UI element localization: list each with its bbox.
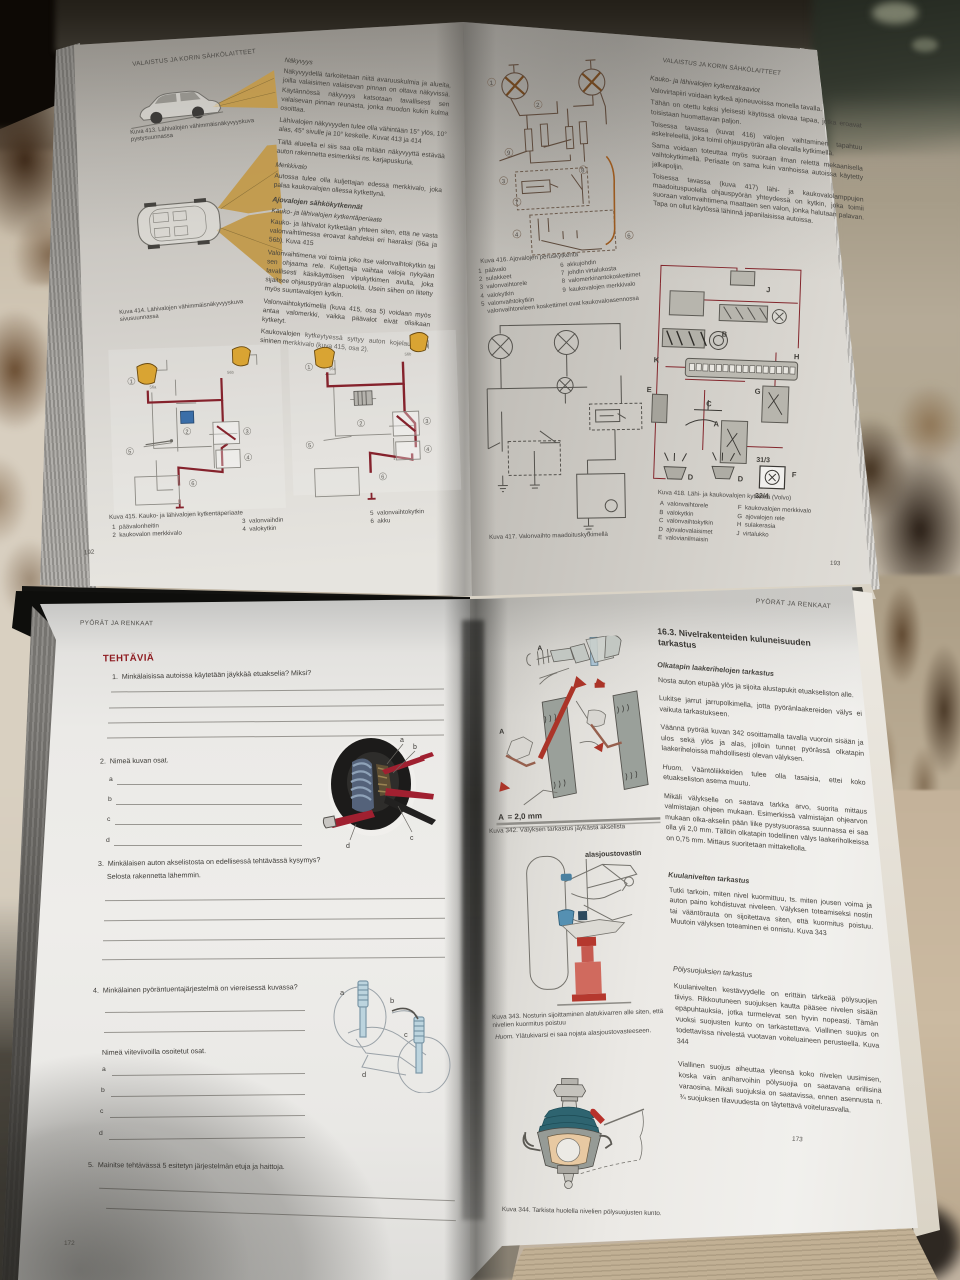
svg-text:E: E [647, 385, 652, 394]
svg-text:b: b [413, 744, 417, 751]
svg-text:3: 3 [425, 419, 428, 425]
svg-text:2: 2 [185, 429, 188, 435]
svg-text:F: F [792, 470, 797, 479]
svg-text:5: 5 [128, 449, 131, 455]
svg-text:6: 6 [381, 475, 384, 481]
svg-text:c: c [410, 835, 414, 842]
svg-text:56b: 56b [227, 370, 235, 375]
svg-text:J: J [766, 285, 770, 294]
svg-text:6: 6 [191, 481, 194, 487]
svg-text:3: 3 [245, 429, 248, 435]
svg-text:d: d [346, 843, 350, 850]
svg-text:4: 4 [515, 232, 519, 238]
svg-text:5: 5 [308, 443, 311, 449]
svg-text:1: 1 [130, 379, 133, 385]
svg-text:K: K [654, 355, 660, 364]
svg-text:D: D [737, 474, 743, 483]
svg-text:A: A [537, 645, 542, 652]
svg-text:A: A [499, 729, 504, 736]
svg-text:2: 2 [536, 103, 540, 109]
svg-text:31/3: 31/3 [756, 457, 770, 464]
svg-text:8: 8 [581, 168, 585, 174]
svg-text:D: D [688, 472, 694, 481]
svg-text:6: 6 [627, 233, 631, 239]
svg-text:G: G [755, 387, 761, 396]
svg-text:4: 4 [426, 447, 429, 453]
svg-text:H: H [794, 352, 800, 361]
svg-text:56b: 56b [405, 351, 413, 356]
svg-text:B: B [722, 330, 728, 339]
svg-text:a: a [400, 737, 404, 744]
svg-text:1: 1 [307, 365, 310, 371]
svg-text:7: 7 [515, 200, 519, 206]
svg-text:A = 2,0 mm: A = 2,0 mm [498, 811, 542, 822]
svg-text:2: 2 [359, 421, 362, 427]
svg-text:1: 1 [490, 81, 494, 87]
svg-text:4: 4 [246, 455, 249, 461]
svg-text:9: 9 [507, 151, 511, 157]
svg-text:C: C [706, 399, 712, 408]
svg-text:3: 3 [502, 179, 506, 185]
svg-text:A: A [713, 419, 719, 428]
svg-text:56a: 56a [150, 384, 158, 389]
